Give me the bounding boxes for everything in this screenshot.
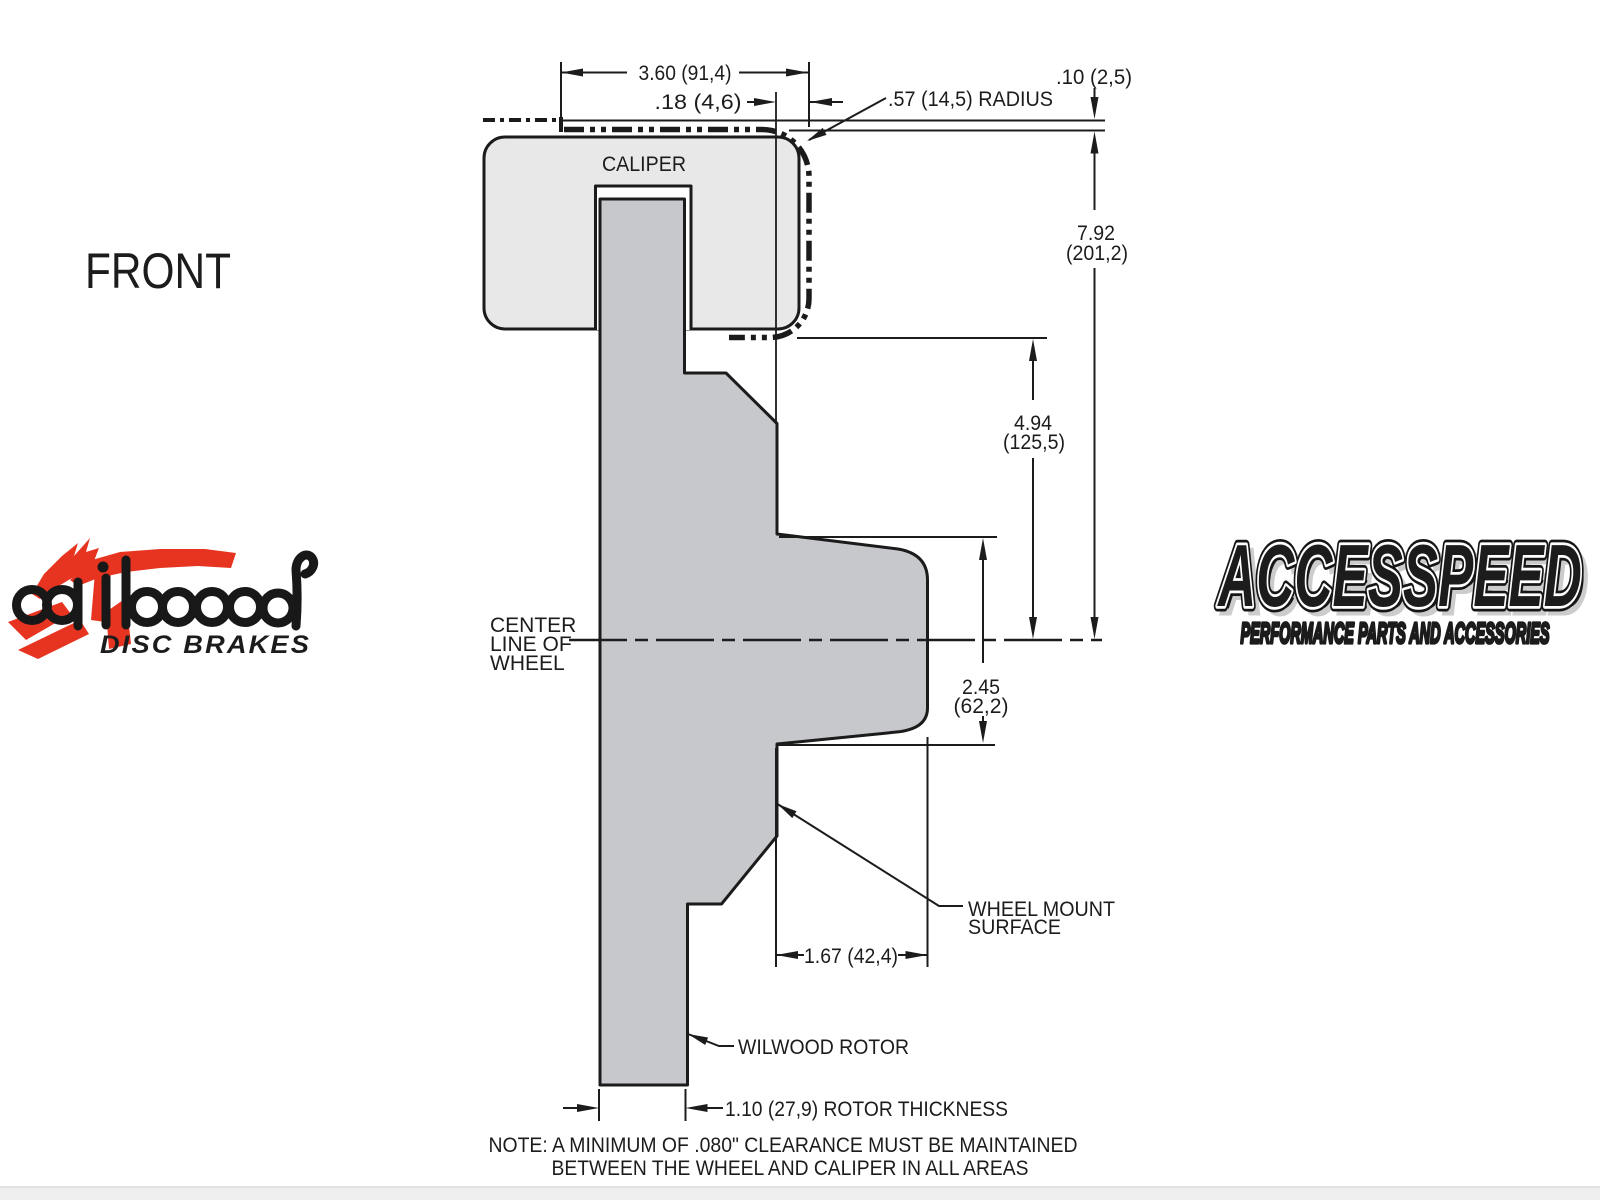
svg-text:BETWEEN THE WHEEL AND CALIPER: BETWEEN THE WHEEL AND CALIPER IN ALL ARE… — [552, 1157, 1029, 1180]
svg-text:CALIPER: CALIPER — [602, 153, 686, 176]
svg-text:(201,2): (201,2) — [1066, 242, 1128, 265]
svg-text:.18 (4,6): .18 (4,6) — [655, 91, 742, 114]
svg-text:ACCESSPEED: ACCESSPEED — [1217, 527, 1582, 625]
svg-text:PERFORMANCE PARTS AND ACCESSOR: PERFORMANCE PARTS AND ACCESSORIES — [1240, 616, 1550, 649]
svg-text:.57 (14,5) RADIUS: .57 (14,5) RADIUS — [888, 88, 1053, 111]
svg-text:WILWOOD ROTOR: WILWOOD ROTOR — [738, 1036, 909, 1059]
svg-text:WHEEL: WHEEL — [490, 652, 565, 675]
svg-text:1.67 (42,4): 1.67 (42,4) — [804, 945, 898, 968]
svg-text:(125,5): (125,5) — [1003, 431, 1065, 454]
svg-text:(62,2): (62,2) — [954, 695, 1009, 718]
svg-text:.10 (2,5): .10 (2,5) — [1056, 66, 1132, 89]
svg-text:SURFACE: SURFACE — [968, 916, 1061, 939]
svg-text:3.60 (91,4): 3.60 (91,4) — [639, 62, 732, 85]
svg-text:NOTE: A MINIMUM OF .080" CLEAR: NOTE: A MINIMUM OF .080" CLEARANCE MUST … — [489, 1134, 1078, 1157]
svg-text:1.10 (27,9) ROTOR THICKNESS: 1.10 (27,9) ROTOR THICKNESS — [725, 1098, 1008, 1121]
svg-text:FRONT: FRONT — [85, 243, 231, 299]
svg-text:DISC BRAKES: DISC BRAKES — [100, 631, 311, 659]
